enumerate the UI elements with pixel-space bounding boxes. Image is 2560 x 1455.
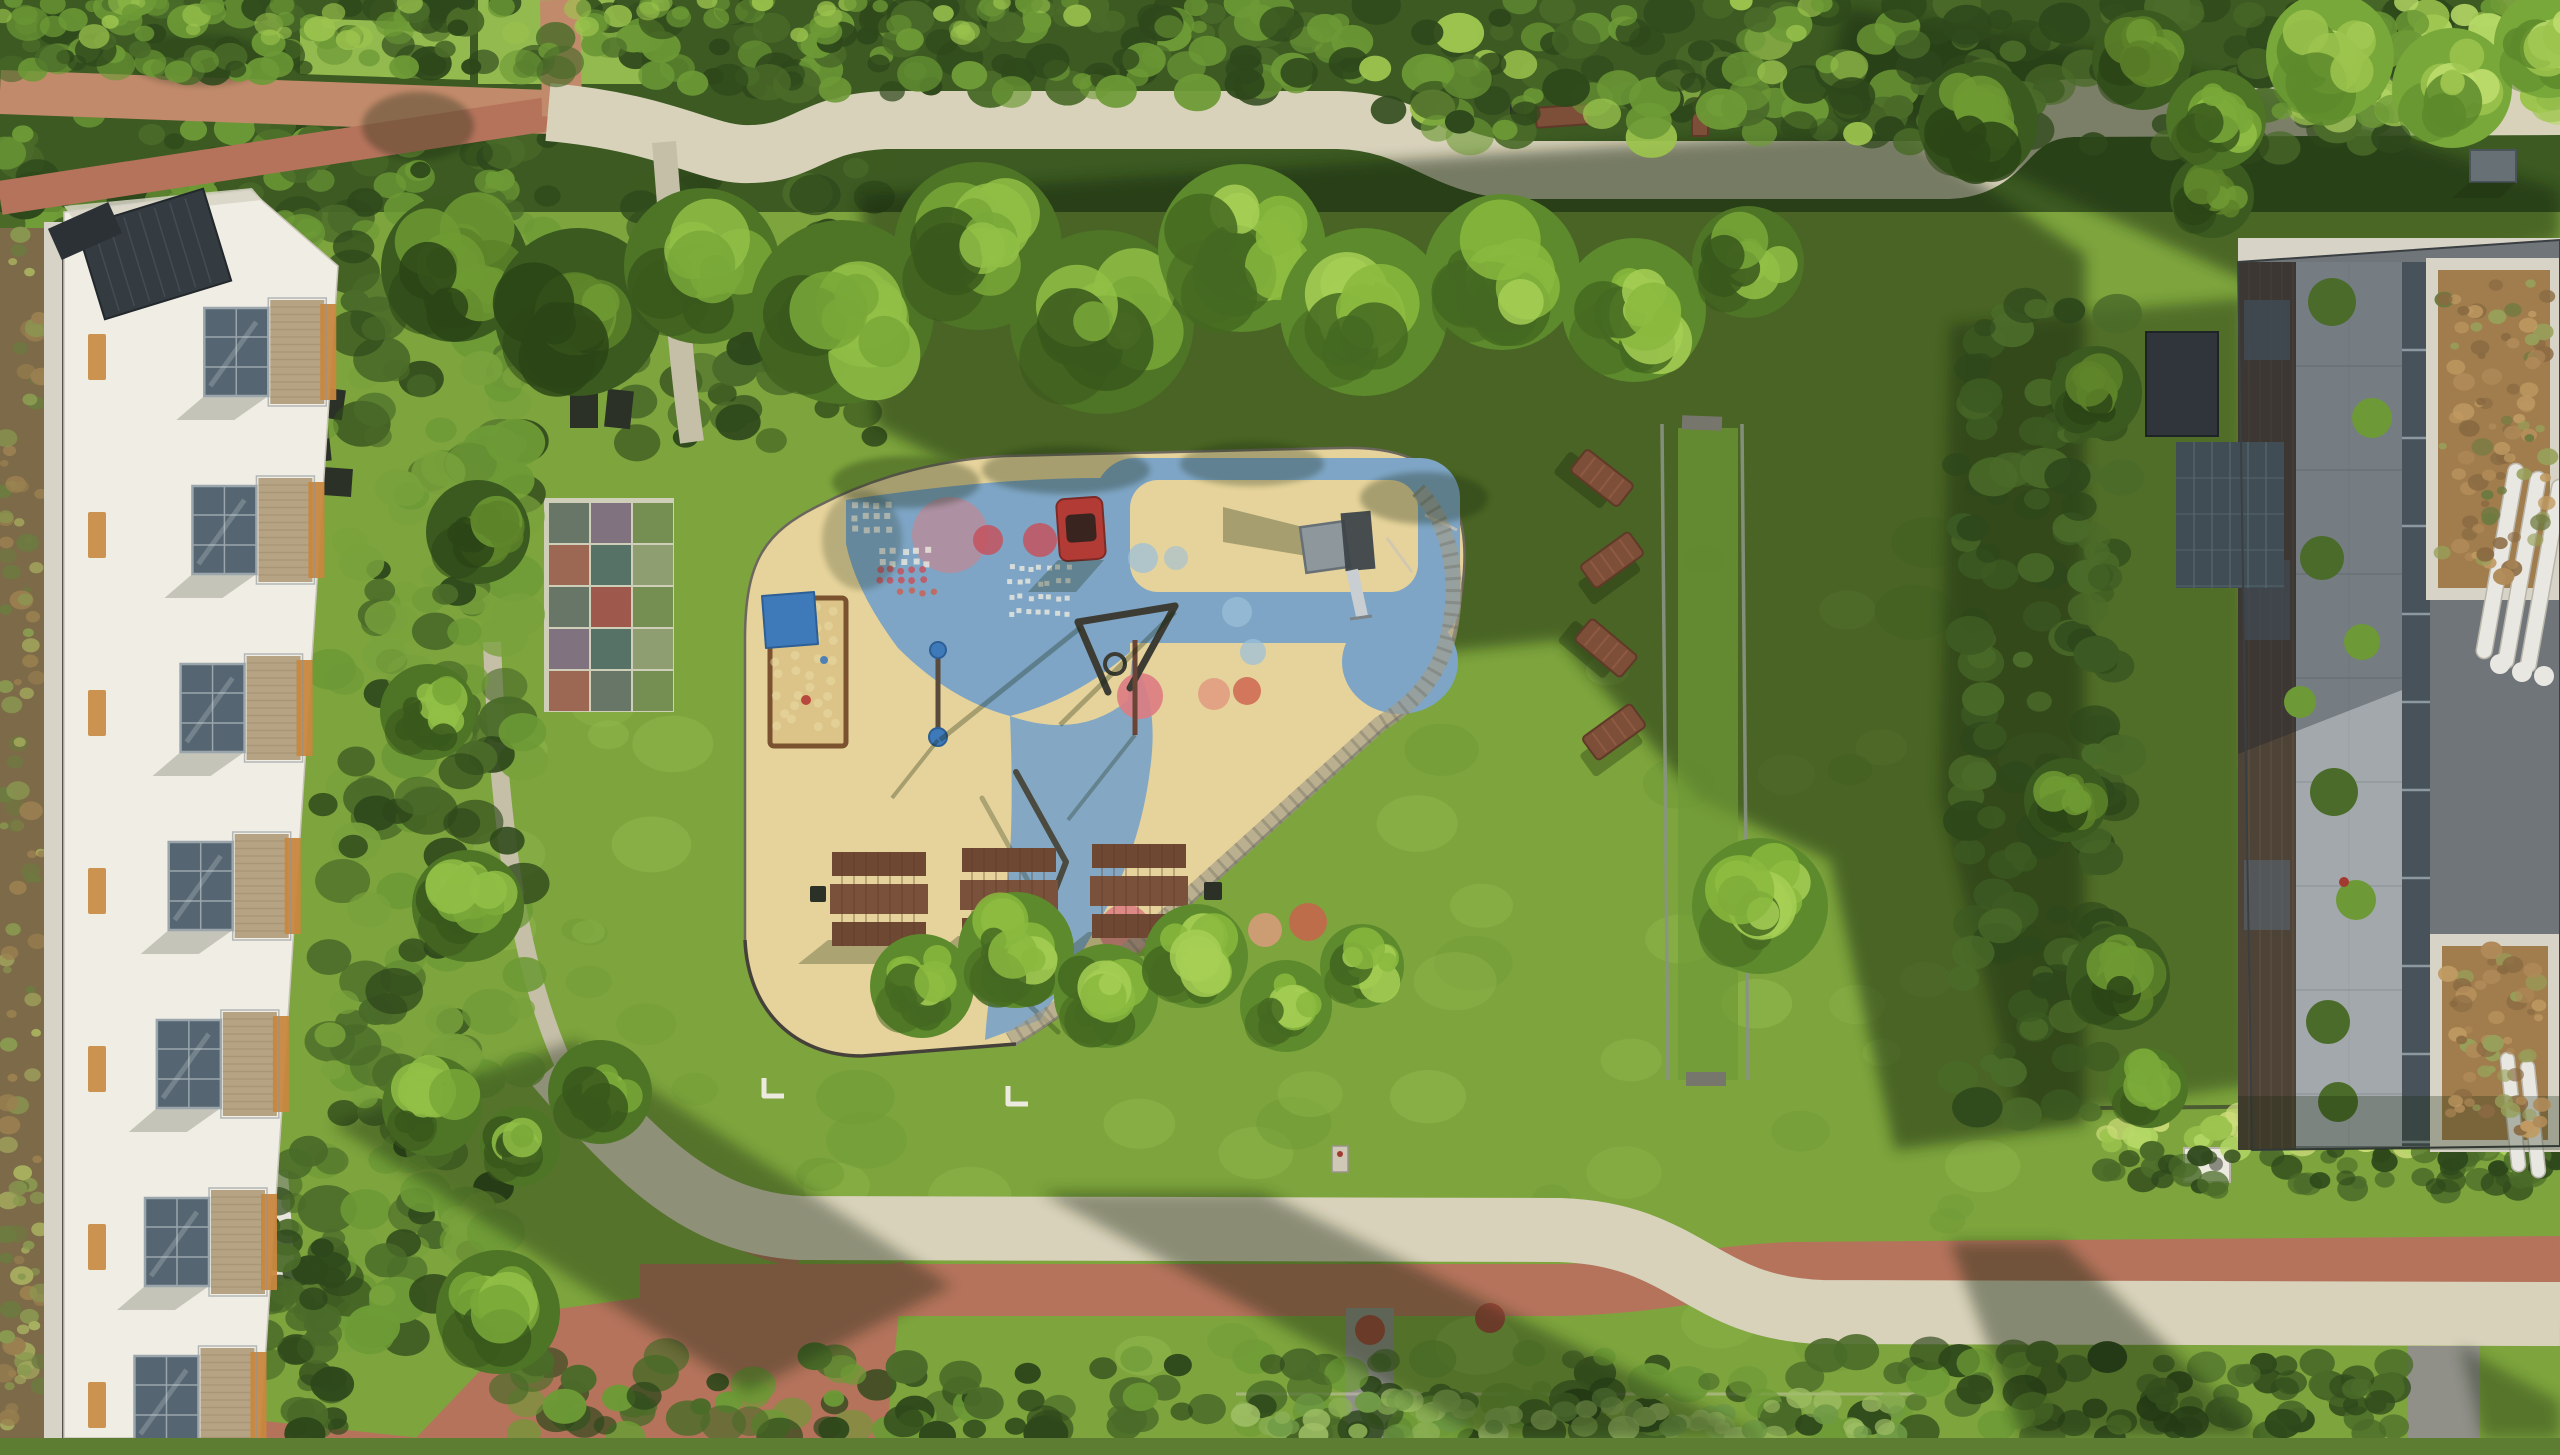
building-border-dark-blob <box>2336 1170 2355 1185</box>
painted-letters-dot <box>1029 567 1034 572</box>
top-hedge-blob <box>1359 56 1391 82</box>
east-hedge-blob <box>1960 378 2003 412</box>
tree-canopy-blob <box>1181 257 1257 333</box>
sedum-moss-blob <box>29 562 43 573</box>
tree-canopy-blob <box>523 302 609 388</box>
east-hedge-blob <box>1976 543 2000 562</box>
n-hedge-inner-blob <box>715 404 760 440</box>
painted-letters-dot <box>1056 597 1061 602</box>
painted-letters-dot <box>1029 596 1034 601</box>
compost-bin <box>604 389 634 430</box>
tree-canopy-blob <box>858 316 909 367</box>
orange-door <box>88 334 106 380</box>
gravel-border <box>44 222 62 1438</box>
top-hedge-sunlit-blob <box>336 30 361 50</box>
terrace-plant <box>2344 624 2380 660</box>
stone-marker-dot <box>1337 1151 1343 1157</box>
sedum-moss-blob <box>2481 500 2490 507</box>
top-hedge-sunlit-blob <box>1063 5 1091 27</box>
sedum-moss-blob <box>14 518 25 526</box>
west-garden-shrubs-blob <box>333 230 374 263</box>
sedum-moss-blob <box>24 1068 41 1081</box>
west-garden-shrubs-blob <box>425 1005 463 1036</box>
top-hedge-blob <box>1828 77 1875 115</box>
east-hedge-blob <box>2093 294 2142 334</box>
tree-canopy <box>548 1040 652 1144</box>
painted-letters-dot <box>1026 609 1031 614</box>
sedum-moss-blob <box>2453 403 2475 420</box>
west-garden-shrubs-low-blob <box>311 1239 334 1258</box>
top-hedge-blob <box>601 37 627 57</box>
sedum-moss-blob <box>2 1303 17 1315</box>
east-hedge-blob <box>2095 734 2146 775</box>
sedum-moss-blob <box>2451 995 2473 1012</box>
west-garden-shrubs-low-blob <box>281 1193 306 1213</box>
orange-door <box>88 512 106 558</box>
top-hedge-blob <box>1830 51 1868 81</box>
terrace-panel <box>285 838 301 934</box>
sedum-moss-blob <box>7 1074 17 1082</box>
top-hedge-blob <box>1489 9 1512 27</box>
top-hedge-blob <box>468 50 499 75</box>
sedum-moss-blob <box>2525 434 2535 442</box>
se-bushes-blob <box>2265 1409 2302 1438</box>
tree-canopy <box>2024 758 2108 842</box>
east-hedge-blob <box>2024 299 2049 319</box>
bottom-shrub-band-blob <box>886 1350 928 1384</box>
top-hedge-blob <box>499 50 543 85</box>
top-hedge-blob <box>191 50 219 73</box>
sedum-moss-blob <box>2533 1116 2548 1128</box>
tree-canopy-blob <box>471 1285 530 1344</box>
sedum-moss-blob <box>22 394 37 406</box>
sedum-moss-blob <box>6 1010 16 1018</box>
sandbox-sand-dot <box>823 692 832 701</box>
sedum-moss-blob <box>2487 958 2497 966</box>
painted-circle-red-south <box>1289 903 1327 941</box>
sandbox-sand-dot <box>773 669 782 678</box>
tree-canopy-blob <box>1498 279 1544 325</box>
tree-canopy-blob <box>1175 936 1219 980</box>
grass-mottle-blob <box>566 966 612 998</box>
painted-letters-dot <box>1065 596 1070 601</box>
sedum-moss-blob <box>2519 318 2538 333</box>
west-garden-shrubs-blob <box>509 998 536 1019</box>
top-hedge-sunlit-blob <box>79 24 110 49</box>
grass-mottle-blob <box>796 1158 844 1192</box>
west-garden-shrubs-low-blob <box>278 1337 313 1365</box>
top-hedge-sunlit-blob <box>1154 15 1183 38</box>
sedum-moss-blob <box>2497 1069 2513 1081</box>
sedum-moss-blob <box>31 1029 41 1037</box>
terrace-plant <box>2310 768 2358 816</box>
sandbox-toy <box>820 656 828 664</box>
tree-canopy <box>1320 924 1404 1008</box>
nw-hedge-blob <box>180 119 207 141</box>
top-hedge-blob <box>225 61 246 78</box>
painted-letters-dot <box>1064 612 1069 617</box>
sandbox-sand-dot <box>814 722 823 731</box>
top-hedge-sunlit-blob <box>186 24 200 36</box>
top-hedge-sunlit-blob <box>122 4 143 21</box>
sedum-moss-blob <box>2520 1120 2534 1131</box>
top-hedge-sunlit-blob <box>817 1 836 16</box>
flowerbed-blob <box>1888 1405 1904 1418</box>
sedum-moss-blob <box>5 1403 18 1414</box>
pipe-elbow <box>2512 662 2532 682</box>
sedum-moss-blob <box>2533 1097 2551 1111</box>
sandbox-sand-dot <box>772 691 781 700</box>
west-garden-shrubs-blob <box>347 892 391 927</box>
n-hedge-inner-blob <box>614 424 660 461</box>
canopy-shade-on-playground <box>822 490 902 590</box>
building-border-dark-blob <box>2436 1169 2466 1193</box>
building-border-dark-blob <box>2310 1172 2331 1189</box>
painted-letters-dot <box>1019 566 1024 571</box>
sedum-moss-blob <box>2527 1009 2535 1015</box>
flowerbed-blob <box>1786 1388 1812 1409</box>
east-hedge-blob <box>2027 691 2052 711</box>
compost-bin <box>321 467 353 497</box>
sedum-moss-blob <box>2476 398 2485 406</box>
painted-circle-orange <box>1198 678 1230 710</box>
pipe-elbow <box>2490 654 2510 674</box>
top-hedge-blob <box>448 20 469 36</box>
canopy-shade-on-playground <box>982 446 1150 494</box>
sedum-moss-blob <box>2470 322 2482 332</box>
sedum-moss-blob <box>14 1256 25 1265</box>
orange-door <box>88 690 106 736</box>
top-hedge-blob <box>1786 25 1807 41</box>
sedum-moss-blob <box>2504 453 2516 462</box>
painted-letters-dot <box>1055 611 1060 616</box>
tree-canopy-blob <box>2183 167 2220 204</box>
sedum-moss-blob <box>1 696 22 713</box>
sedum-moss-blob <box>17 1324 29 1334</box>
tree-canopy-blob <box>1257 998 1284 1025</box>
west-garden-shrubs-blob <box>329 990 359 1014</box>
tree-canopy-blob <box>1378 953 1397 972</box>
sedum-moss-blob <box>2454 322 2469 334</box>
sandbox-sand-dot <box>772 721 781 730</box>
sedum-moss-blob <box>2478 1104 2495 1118</box>
sandbox-sand-dot <box>790 701 799 710</box>
top-hedge-blob <box>1259 6 1303 41</box>
top-hedge-blob <box>1445 110 1475 134</box>
sedum-moss-blob <box>10 244 26 257</box>
building-border-dark-blob <box>2375 1172 2395 1188</box>
sedum-moss-blob <box>7 755 23 768</box>
bottom-shrub-band-blob <box>627 1382 662 1410</box>
sedum-moss-blob <box>3 445 16 456</box>
orange-door <box>88 868 106 914</box>
grass-mottle-blob <box>588 720 629 749</box>
west-garden-shrubs-blob <box>432 584 458 605</box>
sedum-moss-blob <box>2453 373 2475 391</box>
tree-canopy <box>1424 194 1580 350</box>
sedum-moss-blob <box>5 923 20 935</box>
west-garden-shrubs-blob <box>502 957 546 992</box>
painted-circle-blue <box>1240 639 1266 665</box>
tree-canopy-blob <box>2283 10 2329 56</box>
bottom-shrub-band-blob <box>884 1405 924 1437</box>
top-hedge-blob <box>1688 40 1714 61</box>
tree-canopy-blob <box>2149 49 2179 79</box>
grass-mottle-blob <box>826 1112 907 1168</box>
west-garden-shrubs-low-blob <box>315 1147 349 1174</box>
sedum-moss-blob <box>5 476 26 493</box>
se-bushes-blob <box>2342 1379 2368 1400</box>
painted-circle-red <box>973 525 1003 555</box>
top-hedge-sunlit-blob <box>1191 21 1207 33</box>
sedum-moss-blob <box>2535 425 2544 433</box>
sedum-moss-blob <box>2472 1104 2480 1111</box>
grass-mottle-blob <box>611 817 691 873</box>
sedum-moss-blob <box>2456 1035 2467 1044</box>
east-hedge-blob <box>2000 1097 2042 1131</box>
sedum-moss-blob <box>32 1155 42 1163</box>
garden-bed-cell <box>591 629 631 669</box>
grass-mottle-blob <box>1278 1071 1343 1117</box>
garden-bed-cell <box>591 545 631 585</box>
red-mosaic-dot <box>908 566 915 573</box>
west-garden-shrubs-low-blob <box>315 1366 346 1391</box>
bottom-shrub-band-blob <box>1089 1357 1117 1379</box>
tree-canopy-blob <box>1460 199 1541 280</box>
west-garden-shrubs-blob <box>354 393 396 427</box>
sedum-moss-blob <box>2474 980 2486 990</box>
building-border-lime-blob <box>2199 1120 2215 1133</box>
top-hedge-blob <box>856 27 878 44</box>
west-garden-shrubs-blob <box>365 968 423 1014</box>
zipline-platform <box>1686 1072 1726 1086</box>
sedum-moss-blob <box>2530 514 2551 530</box>
tree-canopy-blob <box>1939 127 1971 159</box>
building-border-dark-blob <box>2151 1170 2174 1188</box>
top-hedge-blob <box>245 57 280 85</box>
top-hedge-sunlit-blob <box>12 5 37 25</box>
sedum-moss-blob <box>2450 342 2459 349</box>
tree-canopy-blob <box>430 723 458 751</box>
n-hedge-inner-blob <box>789 174 840 215</box>
flowerbed-blob <box>1763 1400 1780 1413</box>
white-mosaic-dot <box>901 559 907 565</box>
west-garden-shrubs-low-blob <box>320 1268 346 1289</box>
sedum-moss-blob <box>2482 368 2502 384</box>
sedum-moss-blob <box>2528 350 2546 364</box>
top-hedge-blob <box>638 61 674 90</box>
top-hedge-blob <box>1072 73 1092 89</box>
east-hedge-blob <box>1962 682 2004 716</box>
orange-mosaic-dot <box>909 587 915 593</box>
se-bushes-blob <box>2299 1349 2334 1377</box>
terrace-plant <box>2300 536 2344 580</box>
red-mosaic-dot <box>919 566 926 573</box>
east-hedge-blob <box>2079 1103 2102 1122</box>
bottom-shrub-band-blob <box>963 1420 986 1438</box>
painted-circle-pink <box>1117 673 1163 719</box>
top-hedge-blob <box>434 41 455 58</box>
top-hedge-sunlit-blob <box>956 22 980 41</box>
picnic-bench <box>962 848 1056 872</box>
sedum-moss-blob <box>2493 568 2515 585</box>
tree-shadow-path <box>362 92 474 160</box>
top-hedge-sunlit-blob <box>261 30 281 46</box>
east-hedge-blob <box>2044 458 2090 495</box>
bottom-shrub-band-blob <box>1015 1363 1041 1384</box>
west-garden-shrubs-blob <box>364 425 392 447</box>
sedum-moss-blob <box>26 986 35 993</box>
top-hedge-sunlit-blob <box>790 28 808 42</box>
sedum-moss-blob <box>2538 496 2556 510</box>
sedum-moss-blob <box>6 781 29 800</box>
top-hedge-blob <box>129 41 151 59</box>
sedum-moss-blob <box>26 611 40 622</box>
tree-canopy-blob <box>667 230 735 298</box>
top-hedge-blob <box>1307 14 1343 43</box>
bottom-shrub-band-blob <box>1164 1354 1192 1376</box>
garden-bed-cell <box>633 503 673 543</box>
sandbox-sand-dot <box>805 683 814 692</box>
sandbox-sand-dot <box>828 656 837 665</box>
top-hedge-blob <box>1371 96 1407 125</box>
west-garden-shrubs-blob <box>341 290 369 313</box>
garden-bed-cell <box>591 503 631 543</box>
top-hedge-blob <box>1174 74 1221 112</box>
top-hedge-blob <box>708 64 748 96</box>
garden-bed-cell <box>549 503 589 543</box>
flowerbed-blob <box>1328 1398 1352 1418</box>
sedum-moss-blob <box>24 268 35 277</box>
terrace-panel <box>261 1194 277 1290</box>
tree-canopy <box>1692 838 1828 974</box>
sedum-moss-blob <box>2438 966 2458 982</box>
east-hedge-blob <box>2061 492 2097 521</box>
tree-canopy-blob <box>2185 103 2224 142</box>
tree-canopy-blob <box>1961 122 2021 182</box>
top-hedge-blob <box>1413 60 1441 82</box>
sedum-moss-blob <box>3 966 12 973</box>
garden-bed-cell <box>591 587 631 627</box>
flowerbed-blob <box>1274 1411 1290 1424</box>
sedum-moss-blob <box>2489 423 2497 429</box>
tree-canopy-blob <box>432 676 461 705</box>
tree-canopy-blob <box>2106 976 2133 1003</box>
sedum-moss-blob <box>2488 1011 2504 1024</box>
tree-canopy-blob <box>1939 73 1978 112</box>
sedum-moss-blob <box>2471 438 2493 455</box>
red-mosaic-dot <box>897 568 904 575</box>
painted-letters-dot <box>1009 612 1014 617</box>
orange-mosaic-dot <box>919 590 925 596</box>
tree-canopy <box>1692 206 1804 318</box>
tree-canopy-blob <box>1296 992 1322 1018</box>
garden-bed-cell <box>633 545 673 585</box>
garden-bed-cell <box>549 545 589 585</box>
sedum-moss-blob <box>2525 334 2540 346</box>
terrace-panel <box>297 660 313 756</box>
painted-letters-dot <box>1046 594 1051 599</box>
west-garden-shrubs-blob <box>365 1243 408 1277</box>
tree-canopy-blob <box>2067 789 2091 813</box>
sedum-moss-blob <box>9 881 26 895</box>
grass-mottle-blob <box>1771 1111 1829 1152</box>
bottom-shrub-band-blob <box>1698 1373 1719 1390</box>
painted-letters-dot <box>1044 610 1049 615</box>
terrace-plant <box>2284 686 2316 718</box>
west-garden-shrubs-blob <box>308 793 337 816</box>
sedum-moss-blob <box>2481 507 2500 522</box>
sedum-moss-blob <box>9 1181 28 1196</box>
sedum-moss-blob <box>2528 311 2536 318</box>
white-mosaic-dot <box>925 547 931 553</box>
tree-canopy <box>1562 238 1706 382</box>
painted-letters-dot <box>1036 610 1041 615</box>
bottom-shrub-band-blob <box>1785 1362 1824 1393</box>
west-garden-shrubs-blob <box>395 777 443 816</box>
canopy-shade-on-playground <box>1180 442 1324 486</box>
sedum-moss-blob <box>18 594 33 606</box>
west-garden-shrubs-blob <box>388 477 424 506</box>
east-hedge-blob <box>1973 723 2007 750</box>
top-right-hedge-blob <box>2079 132 2108 155</box>
sedum-moss-blob <box>2452 468 2466 480</box>
west-garden-shrubs-blob <box>407 374 436 397</box>
west-garden-shrubs-blob <box>340 1189 391 1230</box>
tree-canopy-blob <box>834 274 878 318</box>
sedum-moss-blob <box>17 1364 32 1376</box>
spinner-top <box>930 642 946 658</box>
grass-mottle-blob <box>1390 1070 1466 1123</box>
east-hedge-blob <box>1977 806 2006 829</box>
se-bushes-blob <box>2374 1349 2413 1380</box>
top-hedge-blob <box>1025 43 1069 78</box>
sandbox-sand-dot <box>787 715 796 724</box>
white-mosaic-dot <box>903 549 909 555</box>
top-hedge-blob <box>991 54 1016 74</box>
sandbox-sand-dot <box>805 671 814 680</box>
sedum-moss-blob <box>2508 532 2521 543</box>
tree-canopy-blob <box>470 504 501 535</box>
nw-hedge-blob <box>164 133 184 149</box>
top-hedge-blob <box>1757 60 1787 84</box>
top-hedge-sunlit-blob <box>304 16 336 41</box>
canopy-shade-on-playground <box>1360 472 1488 524</box>
orange-door <box>88 1046 106 1092</box>
nw-hedge-blob <box>474 170 503 194</box>
pipe-elbow <box>2534 666 2554 686</box>
sedum-moss-blob <box>12 342 27 354</box>
top-hedge-blob <box>677 71 708 96</box>
tree-canopy-blob <box>1164 194 1237 267</box>
terrace-pot <box>2339 877 2349 887</box>
grass-mottle-blob <box>1450 884 1513 928</box>
bottom-shrub-band-blob <box>964 1387 1004 1419</box>
top-hedge-blob <box>1492 120 1517 140</box>
sandbox-sand-dot <box>791 666 800 675</box>
sedum-moss-blob <box>2 565 21 580</box>
terrace-panel <box>250 1352 266 1438</box>
sandbox-sand-dot <box>829 636 838 645</box>
east-hedge-blob <box>1969 457 2018 496</box>
terrace-panel <box>273 1016 289 1112</box>
sandbox-sand-dot <box>813 699 822 708</box>
sedum-moss-blob <box>2448 1095 2463 1107</box>
sedum-moss-blob <box>10 227 30 243</box>
sedum-moss-blob <box>1 946 18 960</box>
east-hedge-blob <box>2013 652 2033 668</box>
sedum-moss-blob <box>2507 384 2521 395</box>
